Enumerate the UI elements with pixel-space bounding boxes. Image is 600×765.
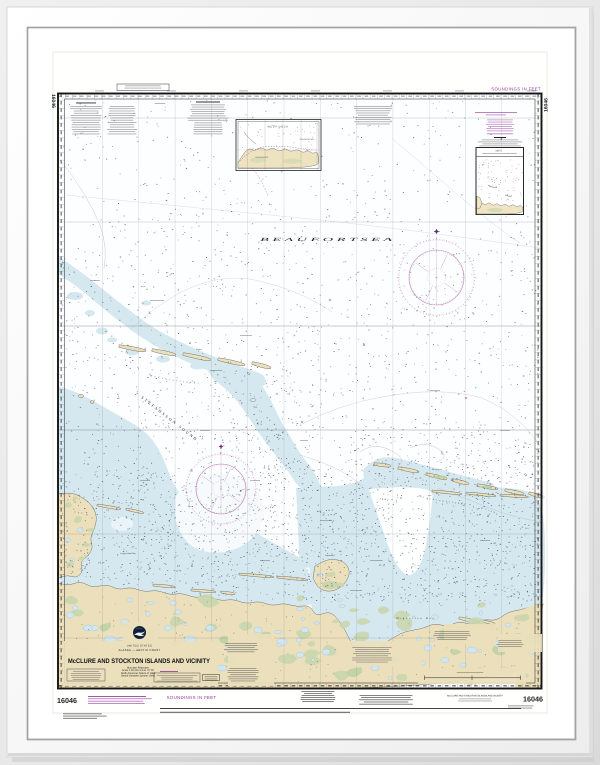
svg-text:PRUDHOE BAY: PRUDHOE BAY (300, 138, 315, 141)
svg-text:NOTE: NOTE (496, 150, 503, 153)
svg-text:16046: 16046 (57, 696, 77, 705)
svg-text:SOUNDINGS IN FEET: SOUNDINGS IN FEET (167, 695, 217, 700)
svg-text:WEST DOCK: WEST DOCK (267, 126, 288, 129)
svg-text:B E A U F O R T S E A: B E A U F O R T S E A (260, 237, 392, 243)
svg-text:Foggy Island Bay: Foggy Island Bay (120, 552, 136, 555)
svg-text:16046: 16046 (523, 695, 543, 704)
svg-text:McCLURE AND STOCKTON ISLANDS A: McCLURE AND STOCKTON ISLANDS AND VICINIT… (447, 695, 503, 698)
svg-text:Mikkelsen Bay: Mikkelsen Bay (396, 617, 435, 620)
svg-text:16046: 16046 (544, 98, 550, 112)
svg-text:16046: 16046 (50, 94, 56, 108)
svg-text:(World Geodetic System 1984): (World Geodetic System 1984) (121, 675, 155, 678)
svg-text:M a g u i r e: M a g u i r e (432, 468, 442, 471)
svg-text:Tigvariak I: Tigvariak I (325, 554, 335, 557)
svg-text:Cross I: Cross I (196, 348, 203, 351)
svg-text:McCLURE AND STOCKTON ISLANDS A: McCLURE AND STOCKTON ISLANDS AND VICINIT… (68, 658, 211, 665)
svg-text:DEADHORSE: DEADHORSE (256, 156, 269, 159)
svg-text:ALASKA — ARCTIC COAST: ALASKA — ARCTIC COAST (118, 648, 160, 652)
